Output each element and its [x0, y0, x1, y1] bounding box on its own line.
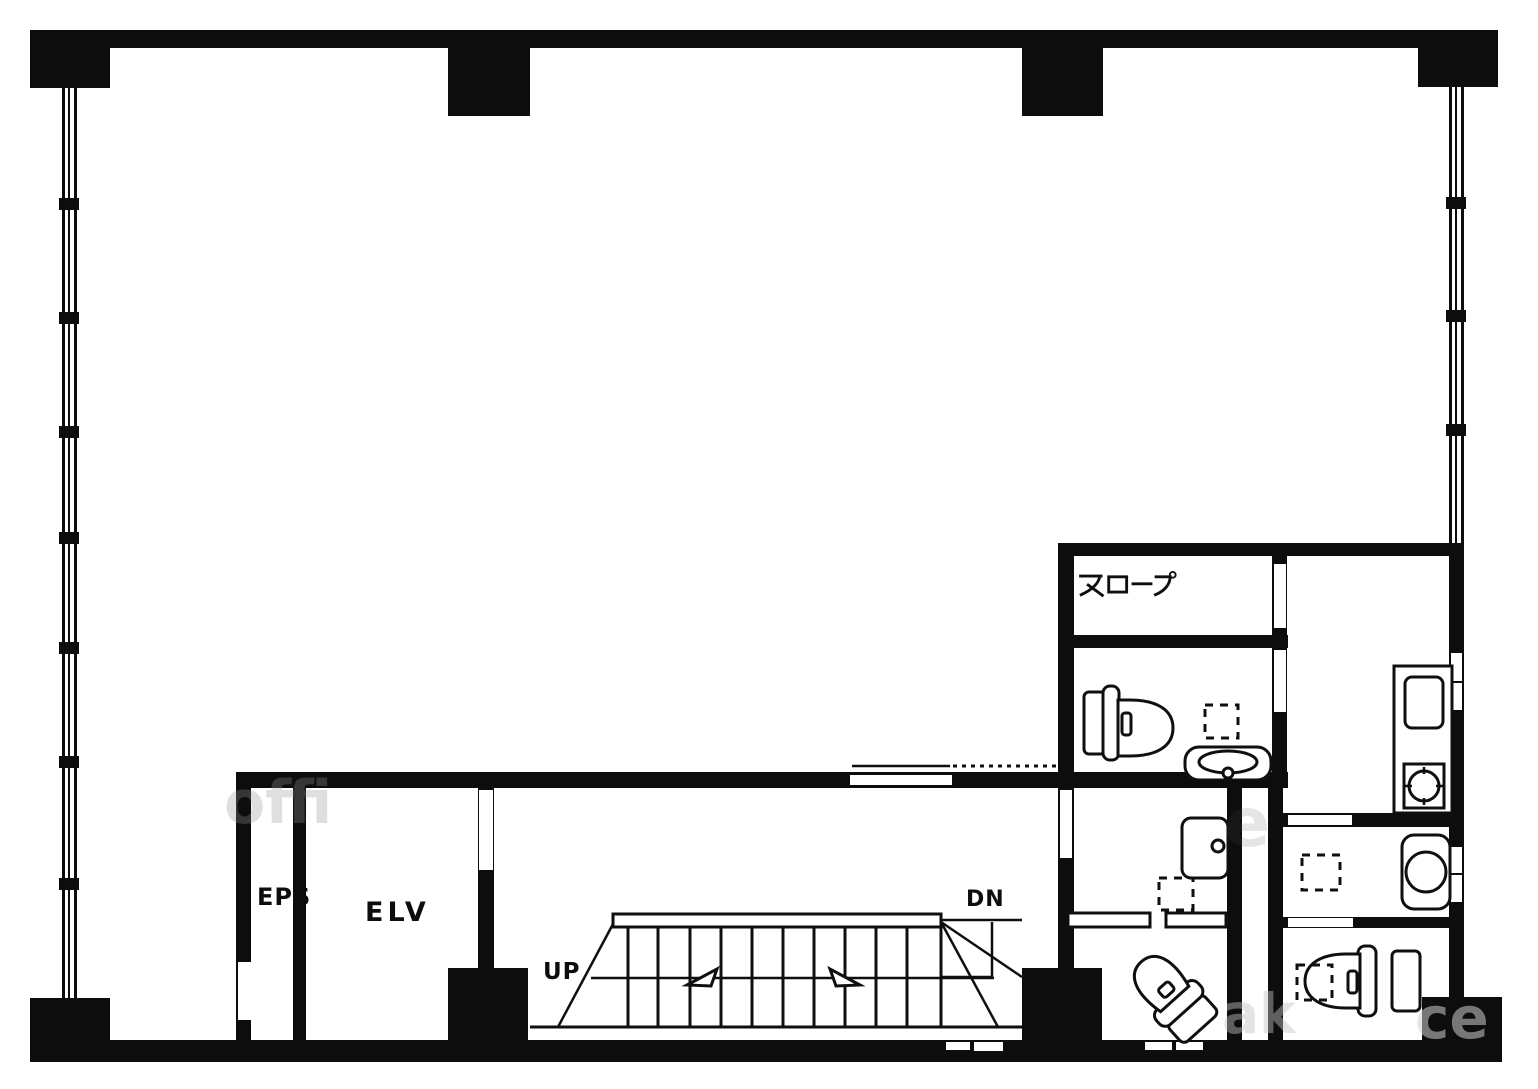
door-knob — [1212, 840, 1224, 852]
glyph-su — [1081, 576, 1103, 595]
glyph-ro — [1109, 577, 1127, 592]
glyph-handakuten — [1170, 572, 1176, 578]
window-mullion — [59, 426, 79, 438]
stove-burner — [1409, 771, 1439, 801]
column-top-mid-2 — [1022, 45, 1103, 116]
floor-plan-canvas: EPS ELV UP DN offi e ak ce — [0, 0, 1538, 1089]
kitchen-counter-fixture — [1394, 666, 1452, 813]
floor-plan-drawing — [0, 0, 1538, 1089]
window-wall-left — [59, 88, 79, 998]
stairs-up-label: UP — [543, 959, 581, 985]
window-mullion — [1446, 424, 1466, 436]
window-mullion — [59, 756, 79, 768]
glyph-pu — [1155, 577, 1170, 595]
floor-drain — [1205, 705, 1238, 738]
bottom-wall-door-slit — [974, 1042, 1003, 1051]
window-mullion — [59, 532, 79, 544]
changing-room-door-opening — [1060, 790, 1072, 858]
eps-door-opening — [238, 962, 251, 1020]
slope-label — [1081, 572, 1176, 595]
wash-basin-fixture — [1402, 835, 1450, 909]
east-rooms-top-wall — [1058, 543, 1462, 556]
bottom-wall-door-slit — [1145, 1042, 1172, 1050]
window-mullion — [59, 642, 79, 654]
floor-drain — [1302, 855, 1340, 890]
floor-drain — [1159, 878, 1193, 910]
slope-room-south-wall — [1058, 635, 1288, 648]
slope-room-door-opening — [1274, 564, 1286, 628]
accessible-toilet-fixture — [1084, 686, 1173, 760]
column-top-right — [1418, 30, 1498, 87]
toilet-room-door-opening — [1274, 650, 1286, 712]
basin-bowl — [1406, 852, 1446, 892]
angled-toilet-fixture — [1120, 943, 1222, 1047]
bottom-wall — [30, 1040, 1502, 1062]
window-mullion — [1446, 310, 1466, 322]
column-bottom-mid-1 — [448, 968, 528, 1042]
window-mullion — [59, 198, 79, 210]
window-mullion — [59, 878, 79, 890]
column-bottom-right — [1422, 997, 1502, 1056]
sink-drain — [1223, 768, 1233, 778]
bottom-wall-door-slit — [1176, 1042, 1203, 1050]
window-slit — [1451, 847, 1462, 873]
stair-dn-break-line — [941, 922, 1022, 977]
bench — [1166, 913, 1226, 927]
counter-sink-fixture — [1185, 747, 1271, 780]
staircase — [530, 914, 1022, 1027]
eps-elv-divider-wall — [293, 788, 306, 1040]
window-slit — [1451, 875, 1462, 902]
corridor-north-wall — [236, 772, 1288, 788]
window-mullion — [1446, 197, 1466, 209]
toilet-tank — [1392, 951, 1420, 1011]
window-mullion — [59, 312, 79, 324]
bench — [1068, 913, 1150, 927]
wc-toilet-fixture — [1305, 946, 1420, 1016]
column-bottom-left — [30, 998, 110, 1056]
eps-shaft-label: EPS — [257, 886, 283, 910]
column-top-mid-1 — [448, 45, 530, 116]
wc-door-opening — [1288, 918, 1353, 927]
column-top-left — [30, 30, 110, 88]
corridor-sliding-door-opening — [850, 775, 952, 785]
bottom-wall-door-slit — [946, 1042, 970, 1050]
stair-top-rail — [613, 914, 941, 927]
kitchen-door-opening — [1288, 815, 1352, 825]
elevator-door-opening — [479, 790, 493, 870]
stair-dn-break-line — [941, 922, 998, 1027]
top-wall — [30, 30, 1498, 48]
elevator-label: ELV — [365, 897, 430, 928]
kitchen-sink — [1405, 677, 1443, 728]
stairs-down-label: DN — [966, 887, 1005, 912]
shaft-east-wall — [1268, 788, 1283, 1040]
